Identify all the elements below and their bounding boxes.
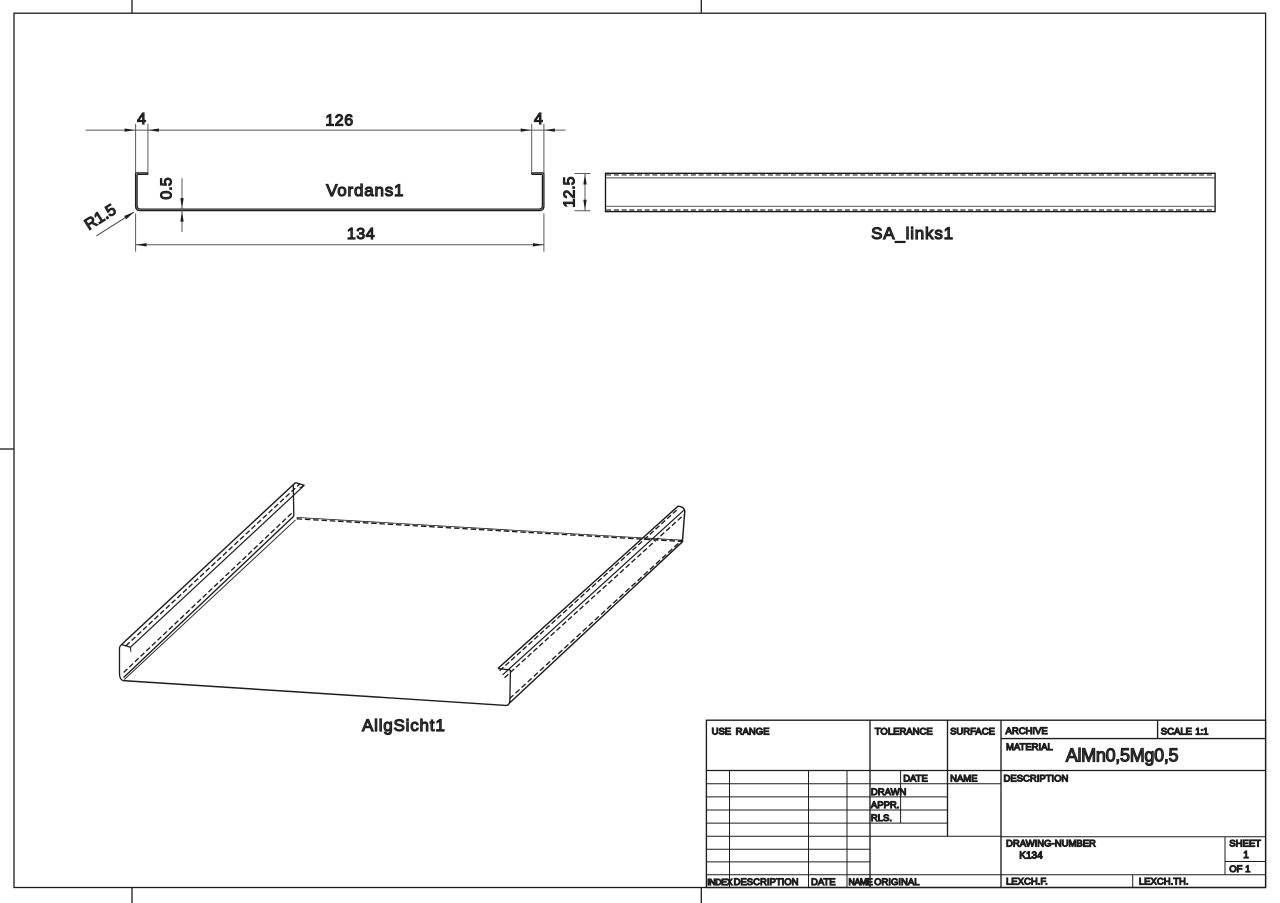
svg-text:4: 4 — [137, 111, 146, 128]
svg-text:0.5: 0.5 — [159, 177, 176, 199]
svg-text:LEXCH.F.: LEXCH.F. — [1006, 877, 1048, 888]
svg-text:K134: K134 — [1019, 851, 1043, 862]
svg-text:DRAWING-NUMBER: DRAWING-NUMBER — [1006, 839, 1096, 850]
svg-text:DRAWN: DRAWN — [871, 787, 907, 798]
svg-text:126: 126 — [325, 112, 353, 129]
svg-text:R1.5: R1.5 — [82, 201, 120, 233]
svg-text:AllgSicht1: AllgSicht1 — [362, 716, 446, 735]
svg-text:OF 1: OF 1 — [1229, 864, 1250, 875]
svg-text:Vordans1: Vordans1 — [326, 181, 404, 200]
svg-text:SHEET: SHEET — [1229, 839, 1261, 850]
svg-text:AlMn0,5Mg0,5: AlMn0,5Mg0,5 — [1066, 746, 1179, 766]
svg-text:DESCRIPTION: DESCRIPTION — [734, 877, 799, 888]
svg-text:RLS.: RLS. — [871, 813, 892, 824]
svg-text:USE RANGE: USE RANGE — [712, 727, 770, 738]
svg-text:DATE: DATE — [811, 877, 836, 888]
svg-text:ARCHIVE: ARCHIVE — [1006, 726, 1048, 737]
svg-text:DATE: DATE — [903, 774, 928, 785]
svg-text:134: 134 — [347, 226, 375, 243]
svg-text:TOLERANCE: TOLERANCE — [875, 727, 933, 738]
svg-text:ORIGINAL: ORIGINAL — [874, 877, 919, 888]
svg-text:SCALE: SCALE — [1161, 726, 1192, 737]
svg-text:4: 4 — [534, 111, 543, 128]
svg-text:12.5: 12.5 — [562, 176, 579, 207]
svg-text:APPR.: APPR. — [871, 800, 900, 811]
svg-text:1: 1 — [1243, 850, 1249, 861]
svg-text:SA_links1: SA_links1 — [871, 224, 954, 243]
svg-text:NAME: NAME — [950, 774, 977, 785]
svg-text:LEXCH.TH.: LEXCH.TH. — [1139, 877, 1189, 888]
svg-text:1:1: 1:1 — [1195, 726, 1208, 737]
svg-text:DESCRIPTION: DESCRIPTION — [1004, 774, 1069, 785]
svg-text:NAME: NAME — [849, 877, 873, 887]
svg-text:SURFACE: SURFACE — [950, 727, 995, 738]
svg-text:MATERIAL: MATERIAL — [1006, 742, 1053, 753]
svg-text:INDEX: INDEX — [707, 877, 733, 887]
